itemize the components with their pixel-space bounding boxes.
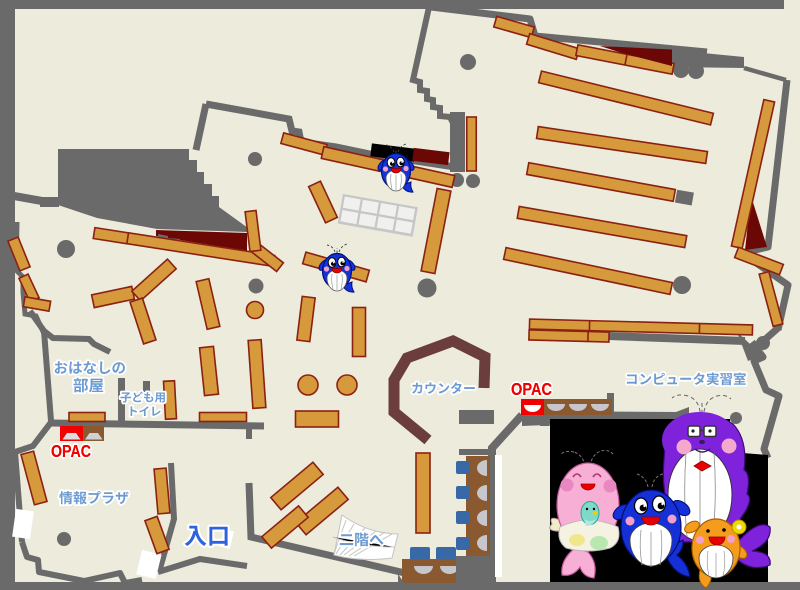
svg-text:OPAC: OPAC <box>511 379 552 399</box>
svg-text:OPAC: OPAC <box>51 441 91 461</box>
